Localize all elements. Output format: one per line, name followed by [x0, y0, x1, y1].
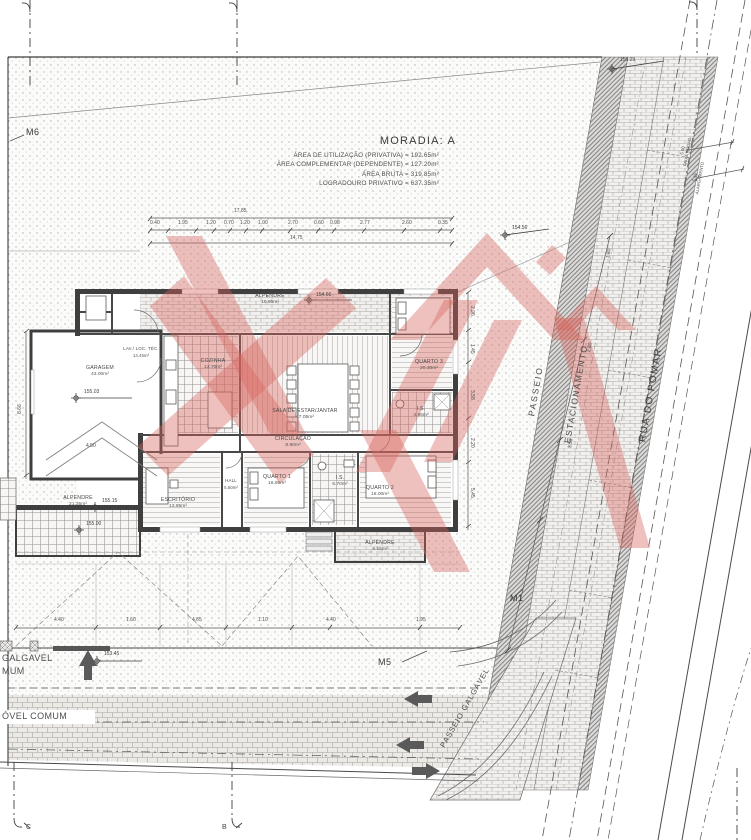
room-label-lav: LAV./ LOC. TÉC.: [123, 346, 159, 351]
boundary-text: ÓVEL COMUM: [2, 711, 67, 721]
room-label-sala: SALA DE ESTAR/JANTAR: [272, 408, 337, 414]
level-street-top: 155.29: [620, 57, 635, 63]
dimension-label: 1.60: [126, 618, 136, 623]
room-area-escritorio: 13.85m²: [169, 504, 187, 509]
dimension-label: 4.50: [86, 444, 96, 449]
dimension-label: 4.65: [192, 618, 202, 623]
dimension-label: 2.70: [288, 221, 298, 226]
dimension-label: 4.40: [326, 618, 336, 623]
dimension-label: 0.60: [314, 221, 324, 226]
room-area-alpendre-n: 10.95m²: [261, 300, 279, 305]
dimension-label: 3.58: [469, 390, 474, 400]
plan-title: MORADIA: A: [380, 135, 456, 147]
wall-marker-m6: M6: [26, 127, 40, 137]
dimension-label: 0.40: [150, 221, 160, 226]
wall-marker-m5: M5: [378, 657, 392, 667]
area-line: LOGRADOURO PRIVATIVO = 637.35m²: [247, 179, 439, 188]
section-marker-b: B: [222, 824, 227, 831]
dimension-label: 0.70: [224, 221, 234, 226]
room-label-quarto3: QUARTO 3: [415, 359, 443, 365]
room-label-escritorio: ESCRITÓRIO: [161, 497, 195, 503]
room-label-alpendre-s: ALPENDRE: [365, 540, 395, 546]
level-lot-ne: 154.56: [512, 225, 527, 231]
dimension-label: 2.96: [469, 306, 474, 316]
room-area-is-norte: 4.85m²: [413, 413, 428, 418]
boundary-text: GALGAVEL: [2, 653, 53, 663]
level-porch-n: 154.66: [316, 292, 331, 298]
room-area-lav: 14.45m²: [133, 353, 149, 358]
dimension-label: 1.10: [258, 618, 268, 623]
wall-marker-m1: M1: [510, 593, 524, 603]
area-line: ÁREA BRUTA = 319.85m²: [247, 170, 439, 179]
room-label-alpendre-n: ALPENDRE: [255, 293, 285, 299]
level-garage: 155.03: [84, 389, 99, 395]
level-lot-s: 153.45: [104, 651, 119, 657]
level-porch-sw: 155.15: [102, 498, 117, 504]
room-area-alpendre-s: 8.15m²: [372, 547, 387, 552]
dimension-label: 2.60: [402, 221, 412, 226]
floor-plan-sheet: MORADIA: A ÁREA DE UTILIZAÇÃO (PRIVATIVA…: [0, 0, 751, 840]
room-label-is-sul: I.S.: [336, 475, 345, 481]
room-area-sala: 47.05m²: [296, 415, 314, 420]
room-area-hall: 5.60m²: [224, 485, 238, 490]
dimension-label: 8.66: [18, 404, 23, 414]
dimension-label: 1.95: [416, 618, 426, 623]
room-label-alpendre-sw: ALPENDRE: [63, 495, 93, 501]
area-line: ÁREA DE UTILIZAÇÃO (PRIVATIVA) = 192.65m…: [247, 151, 439, 160]
room-area-cozinha: 13.70m²: [204, 365, 222, 370]
dimension-label: 1.95: [178, 221, 188, 226]
dimension-label: 1.20: [240, 221, 250, 226]
area-line: ÁREA COMPLEMENTAR (DEPENDENTE) = 127.20m…: [247, 160, 439, 169]
room-area-alpendre-sw: 21.35m²: [69, 502, 87, 507]
dimension-label: 0.98: [330, 221, 340, 226]
room-area-quarto3: 20.30m²: [420, 366, 438, 371]
area-summary: ÁREA DE UTILIZAÇÃO (PRIVATIVA) = 192.65m…: [247, 151, 439, 189]
boundary-text: MUM: [2, 666, 25, 676]
level-porch-sw2: 155.00: [86, 521, 101, 527]
dimension-label: 5.45: [469, 488, 474, 498]
room-label-quarto1: QUARTO 1: [263, 474, 291, 480]
dimension-label: 1.45: [469, 344, 474, 354]
dimension-label: 1.00: [258, 221, 268, 226]
section-marker-c: C: [26, 824, 31, 831]
room-label-cozinha: COZINHA: [201, 358, 226, 364]
room-label-quarto2: QUARTO 2: [366, 485, 394, 491]
dimension-label: 4.40: [54, 618, 64, 623]
room-label-hall: HALL: [225, 478, 237, 483]
dimension-label: 17.85: [234, 209, 247, 214]
room-area-quarto1: 16.95m²: [268, 481, 286, 486]
room-area-quarto2: 16.00m²: [371, 492, 389, 497]
dimension-label: 2.20: [469, 438, 474, 448]
room-label-circulacao: CIRCULAÇÃO: [275, 436, 311, 442]
room-label-is-norte: I.S.: [417, 406, 426, 412]
dimension-label: 14.75: [290, 236, 303, 241]
room-area-is-sul: 6.70m²: [332, 482, 347, 487]
dimension-label: 0.35: [438, 221, 448, 226]
plan-drawing: [0, 0, 751, 840]
dimension-label: 1.20: [206, 221, 216, 226]
dimension-label: 2.77: [360, 221, 370, 226]
room-area-circulacao: 8.90m²: [285, 443, 300, 448]
room-area-garagem: 43.00m²: [91, 372, 109, 377]
room-label-garagem: GARAGEM: [86, 365, 114, 371]
